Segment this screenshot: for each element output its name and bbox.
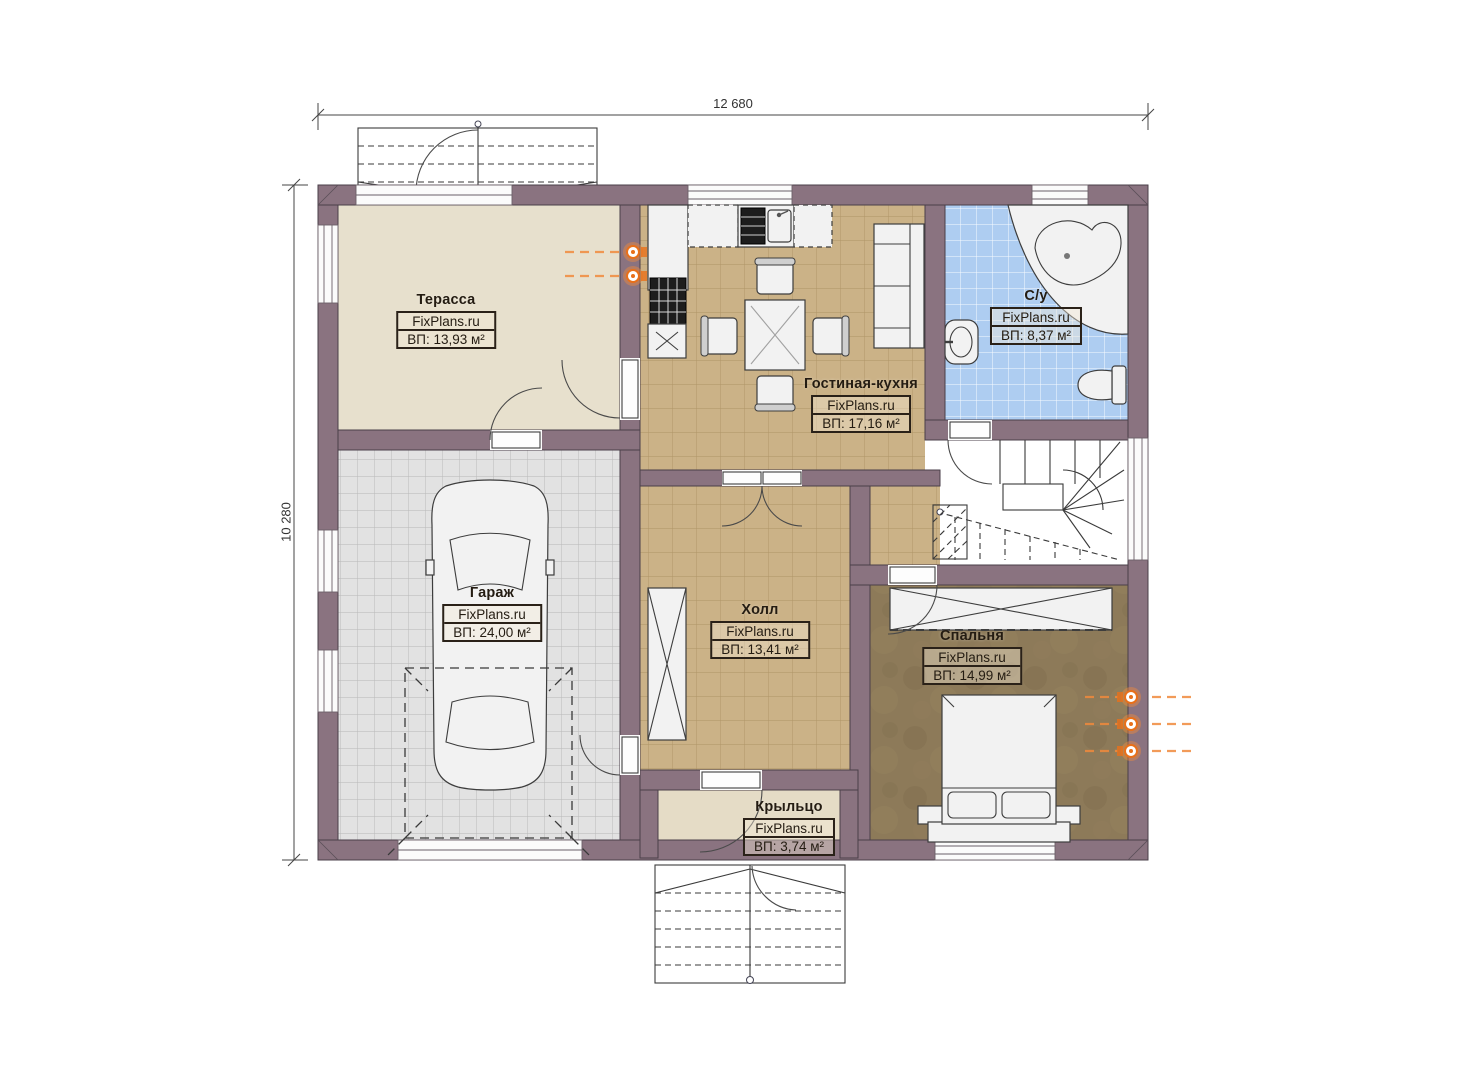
room-info-box: FixPlans.ru ВП: 24,00 м² [442, 604, 542, 642]
chair [705, 318, 737, 354]
garage-door-opening [398, 840, 582, 860]
room-area: ВП: 8,37 м² [992, 327, 1080, 343]
room-name: Крыльцо [743, 799, 835, 815]
terrace-side-window [318, 225, 338, 303]
room-label-bathroom: С/у FixPlans.ru ВП: 8,37 м² [990, 288, 1082, 345]
room-area: ВП: 17,16 м² [813, 415, 909, 431]
bedroom-window [935, 840, 1055, 860]
watermark-text: FixPlans.ru [992, 309, 1080, 327]
room-name: Спальня [922, 628, 1022, 644]
stove [741, 208, 765, 244]
room-label-living-kitchen: Гостиная-кухня FixPlans.ru ВП: 17,16 м² [804, 376, 918, 433]
room-label-garage: Гараж FixPlans.ru ВП: 24,00 м² [442, 585, 542, 642]
kitchen-sink [768, 210, 791, 242]
terrace-top-opening [356, 185, 512, 205]
room-area: ВП: 3,74 м² [745, 838, 833, 854]
floor-plan-drawing [0, 0, 1473, 1080]
floor-plan-canvas: 12 680 10 280 Терасса FixPlans.ru ВП: 13… [0, 0, 1473, 1080]
chair [757, 262, 793, 294]
wash-basin [945, 320, 978, 364]
room-label-terrace: Терасса FixPlans.ru ВП: 13,93 м² [396, 292, 496, 349]
garage-window-2 [318, 650, 338, 712]
room-info-box: FixPlans.ru ВП: 14,99 м² [922, 647, 1022, 685]
sofa [874, 224, 924, 348]
room-info-box: FixPlans.ru ВП: 3,74 м² [743, 818, 835, 856]
oven-appliance [650, 278, 686, 324]
porch-entry-steps [655, 865, 845, 984]
room-name: Гостиная-кухня [804, 376, 918, 392]
bathroom-window [1032, 185, 1088, 205]
wardrobe [890, 588, 1112, 630]
chair [757, 376, 793, 408]
room-area: ВП: 14,99 м² [924, 667, 1020, 683]
watermark-text: FixPlans.ru [398, 313, 494, 331]
kitchen-window [688, 185, 792, 205]
room-info-box: FixPlans.ru ВП: 13,41 м² [710, 621, 810, 659]
watermark-text: FixPlans.ru [813, 397, 909, 415]
dimension-top-value: 12 680 [713, 96, 753, 111]
room-label-bedroom: Спальня FixPlans.ru ВП: 14,99 м² [922, 628, 1022, 685]
room-info-box: FixPlans.ru ВП: 8,37 м² [990, 307, 1082, 345]
chair [813, 318, 845, 354]
watermark-text: FixPlans.ru [924, 649, 1020, 667]
room-label-porch: Крыльцо FixPlans.ru ВП: 3,74 м² [743, 799, 835, 856]
room-info-box: FixPlans.ru ВП: 17,16 м² [811, 395, 911, 433]
hall-closet [648, 588, 686, 740]
room-name: Холл [710, 602, 810, 618]
room-area: ВП: 13,93 м² [398, 331, 494, 347]
room-name: С/у [990, 288, 1082, 304]
room-label-hall: Холл FixPlans.ru ВП: 13,41 м² [710, 602, 810, 659]
watermark-text: FixPlans.ru [444, 606, 540, 624]
garage-window-1 [318, 530, 338, 592]
kitchen-cabinet-x [648, 324, 686, 358]
watermark-text: FixPlans.ru [745, 820, 833, 838]
room-info-box: FixPlans.ru ВП: 13,93 м² [396, 311, 496, 349]
room-area: ВП: 24,00 м² [444, 624, 540, 640]
room-name: Терасса [396, 292, 496, 308]
room-name: Гараж [442, 585, 542, 601]
stair-window [1128, 438, 1148, 560]
room-area: ВП: 13,41 м² [712, 641, 808, 657]
dimension-left-value: 10 280 [279, 502, 294, 542]
watermark-text: FixPlans.ru [712, 623, 808, 641]
bed [918, 695, 1080, 842]
